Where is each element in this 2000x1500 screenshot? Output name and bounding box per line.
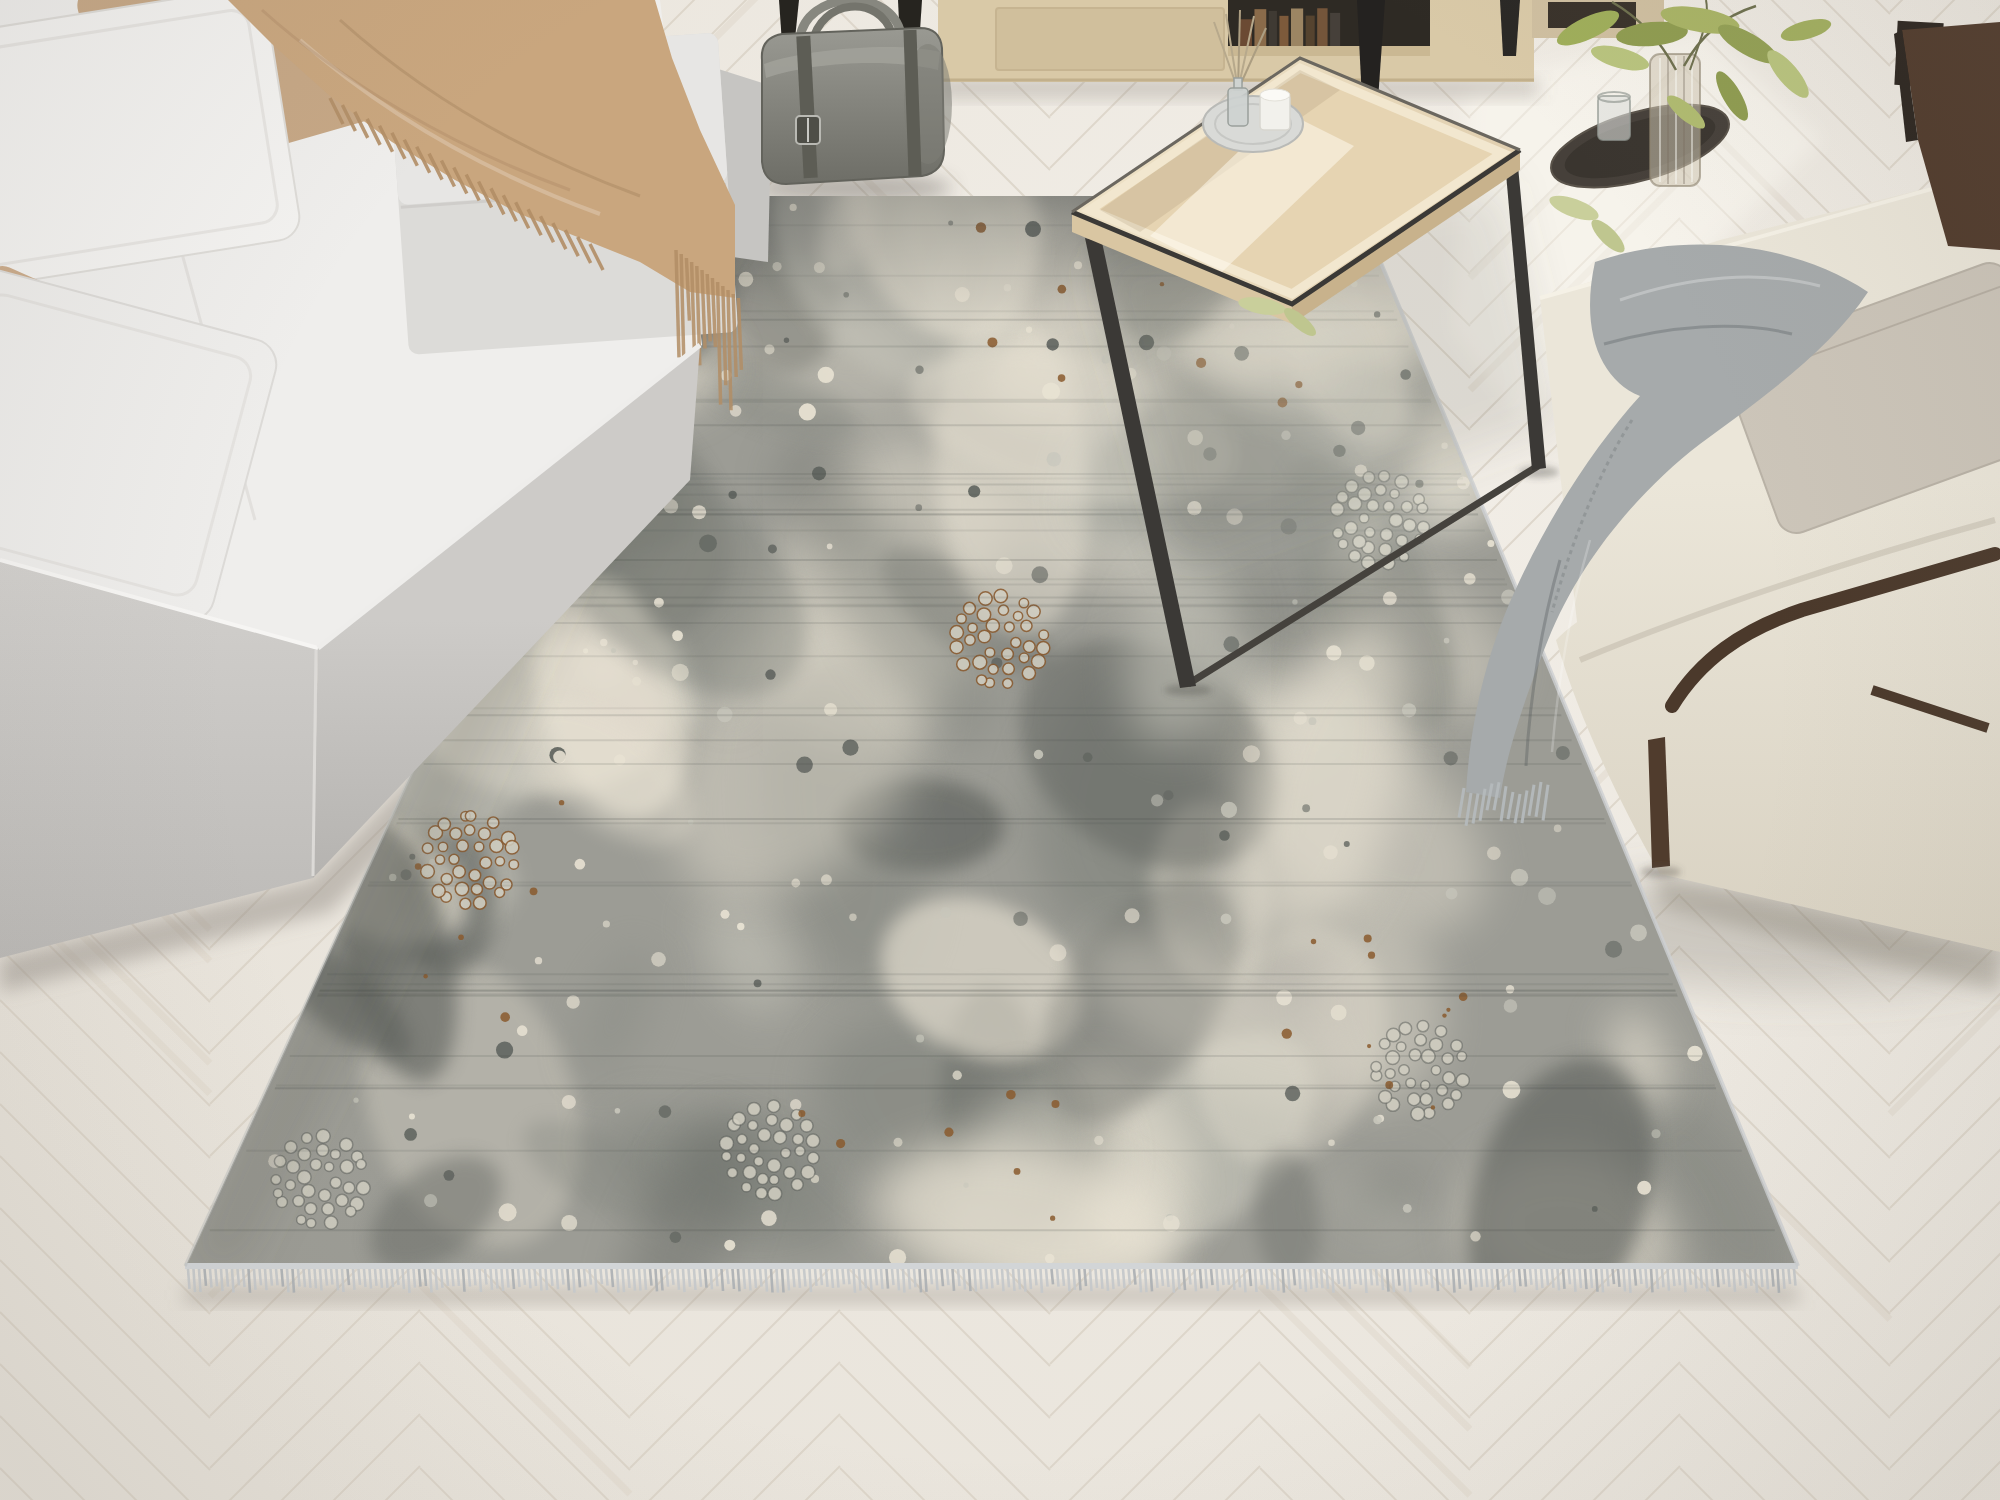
vignette-overlay (0, 0, 2000, 1500)
photo-stage (0, 0, 2000, 1500)
living-room-scene (0, 0, 2000, 1500)
